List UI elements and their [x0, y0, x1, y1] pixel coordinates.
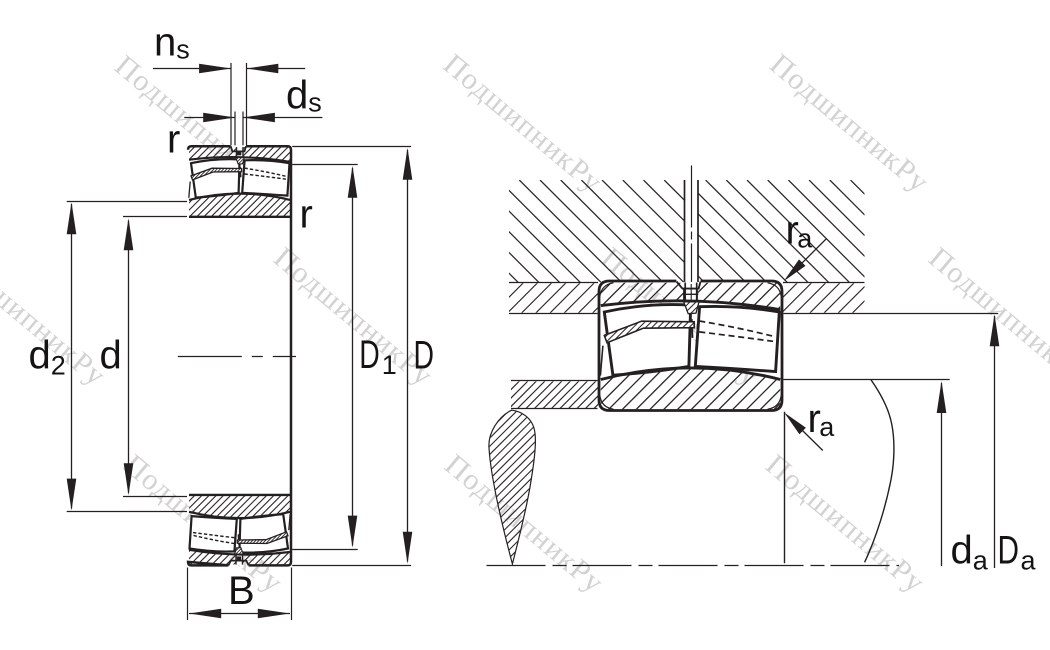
svg-text:d: d [100, 334, 122, 378]
svg-text:a: a [819, 412, 835, 442]
svg-text:d: d [286, 74, 308, 118]
svg-text:r: r [300, 193, 313, 237]
svg-text:B: B [228, 569, 255, 613]
svg-text:a: a [1021, 546, 1037, 576]
svg-text:s: s [176, 35, 190, 65]
svg-text:s: s [308, 88, 322, 118]
svg-text:d: d [29, 333, 51, 377]
svg-text:r: r [167, 118, 180, 162]
svg-text:n: n [154, 21, 176, 65]
svg-text:D: D [359, 333, 380, 377]
svg-text:D: D [414, 334, 435, 378]
svg-text:1: 1 [382, 350, 397, 380]
svg-text:d: d [951, 529, 973, 573]
svg-text:2: 2 [51, 350, 66, 380]
svg-text:D: D [998, 529, 1020, 573]
svg-text:a: a [797, 224, 813, 254]
svg-text:a: a [973, 546, 989, 576]
